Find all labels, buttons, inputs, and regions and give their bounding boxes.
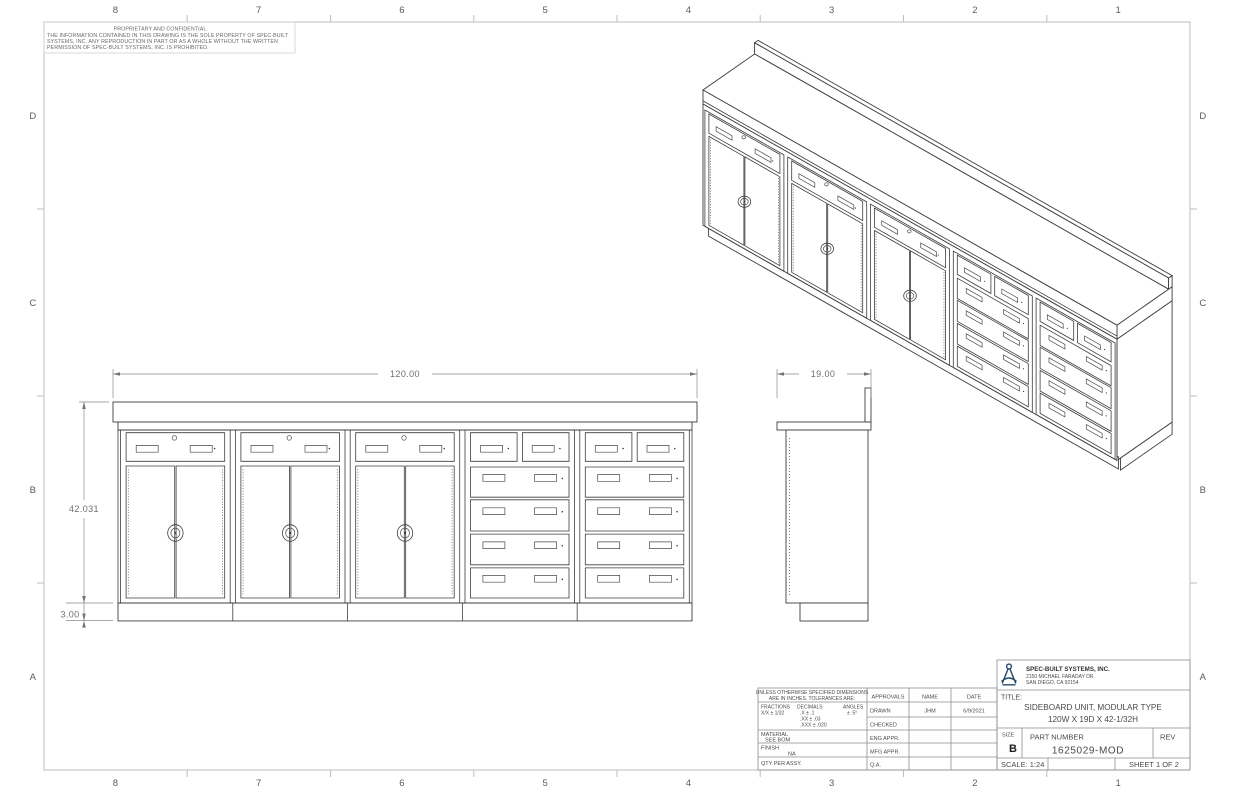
approval-row-date: 6/9/2021 [963,709,984,715]
name-header: NAME [922,695,938,701]
dim-base-height: 3.00 [60,610,79,620]
part-number-label: PART NUMBER [1030,733,1084,742]
drawer-handle [598,542,620,549]
handle-screw-dot [329,448,331,450]
door-section [121,430,231,603]
proprietary-title: PROPRIETARY AND CONFIDENTIAL [114,27,207,33]
approval-row-name: JHM [924,709,936,715]
sheet-text: SHEET 1 OF 2 [1129,760,1179,769]
approval-row-label: ENG APPR. [870,736,900,742]
door-lock-center [289,532,291,534]
door-lock-center [404,532,406,534]
small-drawer [585,433,632,462]
zone-label-right: B [1200,485,1207,496]
drawing-title-line2: 120W X 19D X 42-1/32H [1048,715,1138,724]
drawer-section [580,430,690,603]
drawer-handle [535,542,557,549]
dimension-arrow [777,372,784,376]
base-kick-side [800,603,868,621]
small-drawer [471,433,518,462]
company-name: SPEC-BUILT SYSTEMS, INC. [1026,666,1110,673]
approval-row-label: MFG APPR. [870,750,900,756]
drawer-handle [598,508,620,515]
handle-screw-dot [1106,415,1107,416]
front-view [113,402,697,621]
date-header: DATE [967,695,982,701]
dim-front-width: 120.00 [390,369,420,379]
base-kick [118,603,692,621]
zone-label-bottom: 8 [113,778,119,789]
dimension-arrow [82,614,86,621]
handle-screw-dot [1106,392,1107,393]
handle-screw-dot [984,281,985,282]
zone-label-top: 1 [1116,5,1122,16]
fractions-value: X/X ± 1/32 [761,711,785,717]
drawer-handle [535,475,557,482]
handle-screw-dot [938,254,939,255]
zone-label-bottom: 4 [686,778,692,789]
zone-label-bottom: 3 [829,778,835,789]
drawer-handle [420,445,442,452]
isometric-view [703,40,1172,470]
approval-row-label: DRAWN [870,709,891,715]
dim-overall-height: 42.031 [69,504,99,514]
drawer-handle [305,445,327,452]
drawer-handle [136,445,158,452]
handle-screw-dot [855,207,856,208]
section-frame [350,430,460,603]
zone-label-top: 7 [256,5,262,16]
drawer-handle [649,575,671,582]
zone-label-top: 6 [399,5,405,16]
size-value: B [1009,743,1017,755]
drawer-handle [595,445,617,452]
approval-row-label: CHECKED [870,723,897,729]
handle-screw-dot [1023,391,1024,392]
decimals-value3: .XXX ± .020 [800,723,827,729]
company-logo-icon [1002,664,1017,685]
drawer-handle [251,445,273,452]
top-drawer [356,433,455,462]
door-lock-center [826,248,828,250]
backsplash-strip [113,402,697,422]
tolerance-line2: ARE IN INCHES. TOLERANCES ARE: [769,696,855,702]
proprietary-line: PERMISSION OF SPEC-BUILT SYSTEMS, INC. I… [47,45,209,51]
zone-label-bottom: 7 [256,778,262,789]
title-block: UNLESS OTHERWISE SPECIFIED DIMENSIONS AR… [756,664,1179,769]
drawer-handle [483,475,505,482]
backsplash-side [865,388,871,422]
handle-screw-dot [562,478,564,480]
company-address2: SAN DIEGO, CA 92154 [1026,680,1079,686]
handle-screw-dot [562,545,564,547]
top-drawer [126,433,225,462]
keyhole [287,436,291,441]
drawer-section [465,430,575,603]
drawing-canvas: 8877665544332211DDCCBBAA PROPRIETARY AND… [0,0,1237,800]
zone-label-left: C [29,298,36,309]
top-drawer [241,433,340,462]
section-frame [580,430,690,603]
drawer-handle [483,575,505,582]
handle-screw-dot [1104,349,1105,350]
body-outline [118,430,692,603]
dimension-arrow [864,372,871,376]
scale-text: SCALE: 1:24 [1001,760,1044,769]
drawer-handle [483,508,505,515]
wide-drawer [585,467,684,497]
drawer-handle [649,508,671,515]
handle-screw-dot [772,160,773,161]
drawer-handle [535,508,557,515]
handle-screw-dot [562,579,564,581]
handle-screw-dot [674,448,676,450]
approvals-header: APPROVALS [872,695,905,701]
approval-row-label: Q.A. [870,763,881,769]
handle-screw-dot [1023,323,1024,324]
door-lock-center [174,532,176,534]
handle-screw-dot [622,448,624,450]
countertop-edge [118,422,692,430]
rev-label: REV [1160,733,1175,742]
handle-screw-dot [1023,345,1024,346]
angles-value: ± .5° [847,711,857,717]
material-value: SEE BOM [765,738,790,744]
handle-screw-dot [559,448,561,450]
wide-drawer [585,534,684,565]
handle-screw-dot [214,448,216,450]
dimension-arrow [82,402,86,409]
handle-screw-dot [1067,328,1068,329]
finish-label: FINISH [761,746,779,752]
drawer-handle [366,445,388,452]
dimension-arrow [82,596,86,603]
dimension-arrow [113,372,120,376]
zone-label-top: 5 [543,5,549,16]
part-number-value: 1625029-MOD [1052,746,1124,757]
drawer-handle [598,575,620,582]
handle-screw-dot [676,579,678,581]
zone-label-top: 8 [113,5,119,16]
zone-label-bottom: 6 [399,778,405,789]
side-view [777,388,871,621]
handle-screw-dot [508,448,510,450]
dimension-arrow [82,621,86,628]
qty-label: QTY PER ASSY. [761,761,802,767]
drawer-handle [483,542,505,549]
dimension-arrow [690,372,697,376]
door-section [235,430,345,603]
zone-label-top: 2 [972,5,978,16]
section-frame [121,430,231,603]
wide-drawer [471,500,570,531]
drawer-handle [535,575,557,582]
zone-label-bottom: 2 [972,778,978,789]
drawing-sheet: 8877665544332211DDCCBBAA PROPRIETARY AND… [0,0,1237,800]
finish-value: NA [788,752,796,758]
zone-label-right: A [1200,672,1207,683]
handle-screw-dot [1106,438,1107,439]
handle-screw-dot [676,511,678,513]
drawer-handle [647,445,669,452]
door-lock-center [744,201,746,203]
title-label: TITLE: [1001,695,1022,702]
size-label: SIZE [1002,733,1015,739]
drawer-handle [532,445,554,452]
drawing-title-line1: SIDEBOARD UNIT, MODULAR TYPE [1024,703,1162,712]
door-lock-center [909,295,911,297]
handle-screw-dot [562,511,564,513]
drawer-handle [649,475,671,482]
handle-screw-dot [1021,302,1022,303]
handle-screw-dot [676,478,678,480]
keyhole [402,436,406,441]
dim-side-depth: 19.00 [811,369,836,379]
drawer-handle [598,475,620,482]
zone-label-left: A [30,672,37,683]
section-frame [465,430,575,603]
zone-label-bottom: 1 [1116,778,1122,789]
handle-screw-dot [1106,370,1107,371]
wide-drawer [585,568,684,598]
handle-screw-dot [443,448,445,450]
zone-label-top: 3 [829,5,835,16]
wide-drawer [585,500,684,531]
wide-drawer [471,568,570,598]
handle-screw-dot [1023,368,1024,369]
drawer-handle [190,445,212,452]
wide-drawer [471,534,570,565]
zone-label-right: C [1199,298,1206,309]
zone-label-bottom: 5 [543,778,549,789]
proprietary-notice: PROPRIETARY AND CONFIDENTIAL THE INFORMA… [44,22,295,53]
small-drawer [522,433,569,462]
drawer-handle [649,542,671,549]
zone-label-left: B [30,485,37,496]
door-section [350,430,460,603]
wide-drawer [471,467,570,497]
drawer-handle [481,445,503,452]
cabinet-side-panel [786,430,868,603]
section-frame [235,430,345,603]
handle-screw-dot [676,545,678,547]
keyhole [172,436,176,441]
zone-label-top: 4 [686,5,692,16]
zone-label-right: D [1199,111,1206,122]
countertop-side [777,422,871,430]
zone-label-left: D [29,111,36,122]
small-drawer [637,433,684,462]
